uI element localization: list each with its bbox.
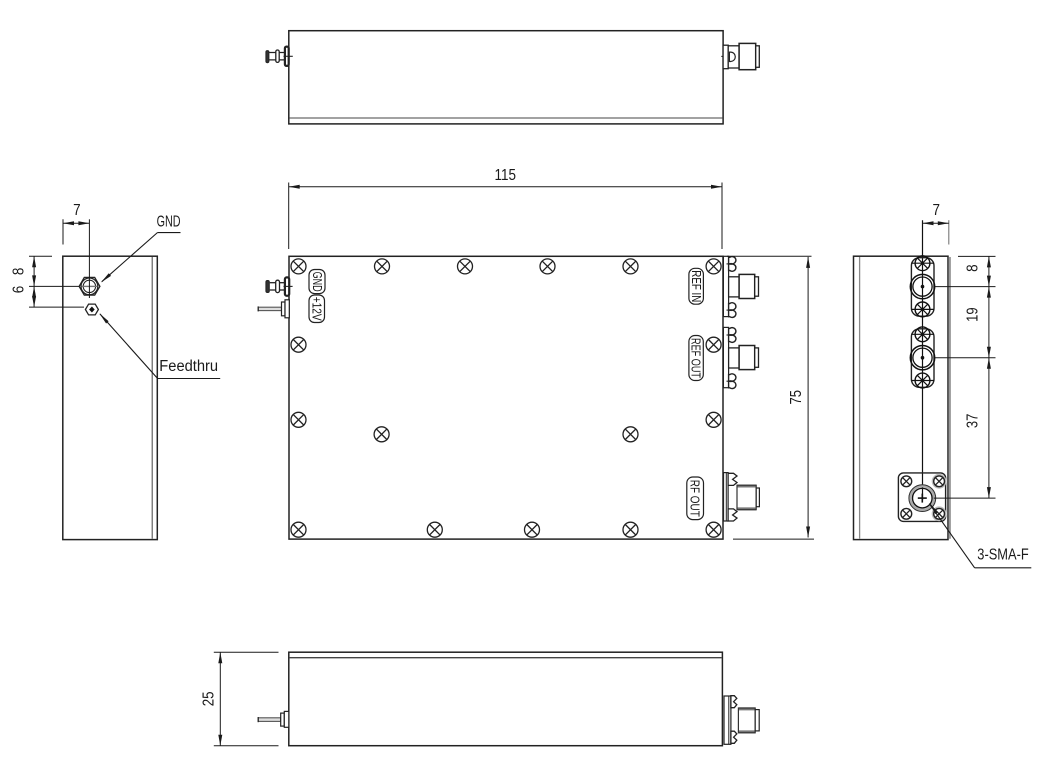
svg-text:+12V: +12V <box>309 297 324 321</box>
svg-text:3-SMA-F: 3-SMA-F <box>977 546 1028 563</box>
svg-text:37: 37 <box>965 414 982 429</box>
svg-text:8: 8 <box>11 268 28 276</box>
svg-text:RF OUT: RF OUT <box>688 480 703 517</box>
svg-text:7: 7 <box>73 202 81 219</box>
svg-text:REF OUT: REF OUT <box>689 338 704 378</box>
svg-text:GND: GND <box>157 214 181 231</box>
svg-text:6: 6 <box>11 286 28 294</box>
svg-text:25: 25 <box>201 691 218 706</box>
svg-text:7: 7 <box>932 202 940 219</box>
svg-text:REF IN: REF IN <box>689 270 704 302</box>
svg-text:115: 115 <box>495 167 517 184</box>
svg-text:19: 19 <box>965 307 982 322</box>
svg-text:8: 8 <box>965 264 982 272</box>
svg-text:Feedthru: Feedthru <box>159 358 218 375</box>
svg-text:GND: GND <box>310 272 325 292</box>
svg-text:75: 75 <box>788 390 805 405</box>
